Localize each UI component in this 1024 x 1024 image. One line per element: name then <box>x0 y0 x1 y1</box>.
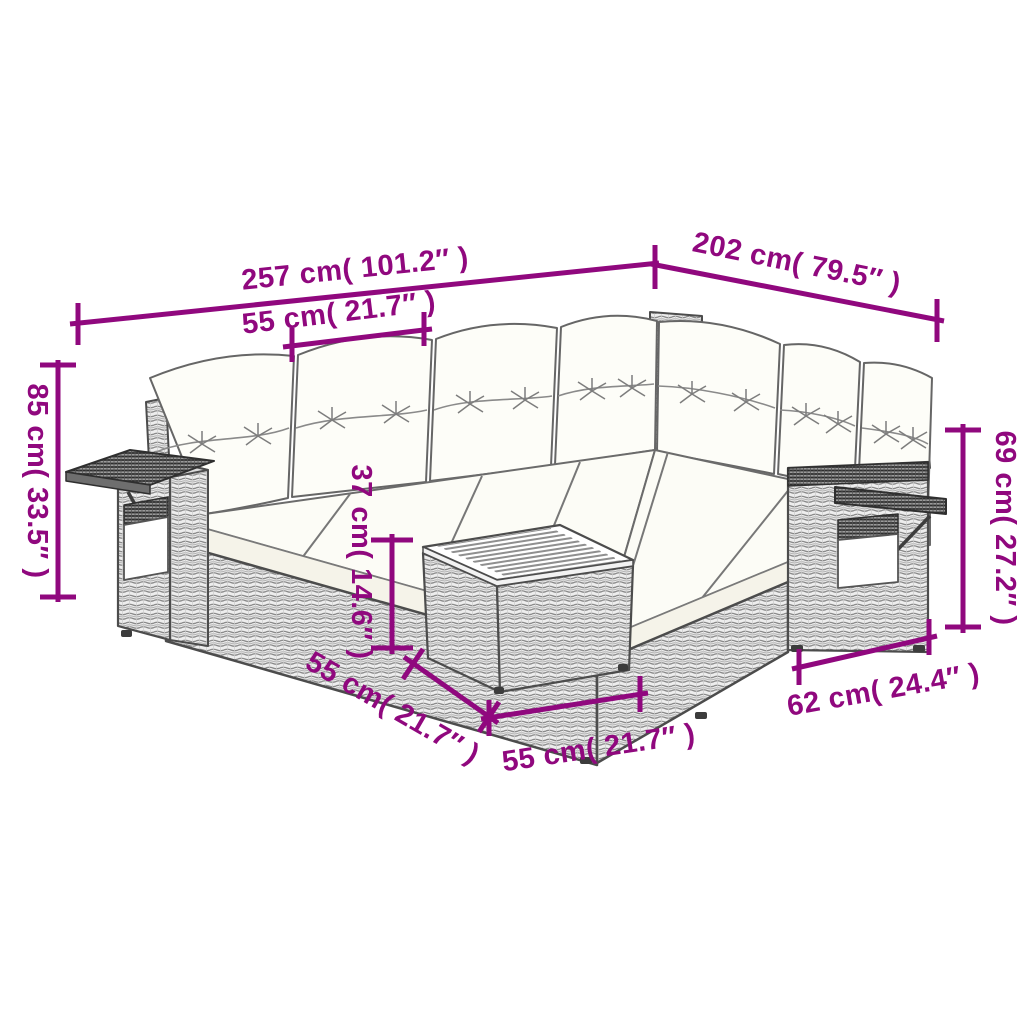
back-cushion <box>657 321 780 474</box>
dim-label-69cm: 69 cm( 27.2″ ) <box>989 431 1021 626</box>
dim-label-85cm: 85 cm( 33.5″ ) <box>21 384 53 579</box>
back-cushion <box>555 316 657 465</box>
left-armrest <box>66 450 214 646</box>
right-arm-pocket-panel <box>838 534 898 588</box>
dim-label-62cm: 62 cm( 24.4″ ) <box>785 657 983 722</box>
dim-label-37cm: 37 cm( 14.6″ ) <box>345 465 377 660</box>
dim-backrest-height: 69 cm( 27.2″ ) <box>945 424 1021 633</box>
right-armrest <box>788 462 946 652</box>
dimension-diagram-canvas: 257 cm( 101.2″ ) 202 cm( 79.5″ ) 55 cm( … <box>0 0 1024 1024</box>
footstool-front-face <box>497 566 633 692</box>
footstool-table <box>423 525 633 692</box>
left-arm-pocket-panel <box>124 517 168 580</box>
dim-label-202cm: 202 cm( 79.5″ ) <box>690 226 904 300</box>
left-arm-inner-face <box>170 461 208 646</box>
diagram-page: 257 cm( 101.2″ ) 202 cm( 79.5″ ) 55 cm( … <box>0 0 1024 1024</box>
back-cushion <box>430 324 557 481</box>
